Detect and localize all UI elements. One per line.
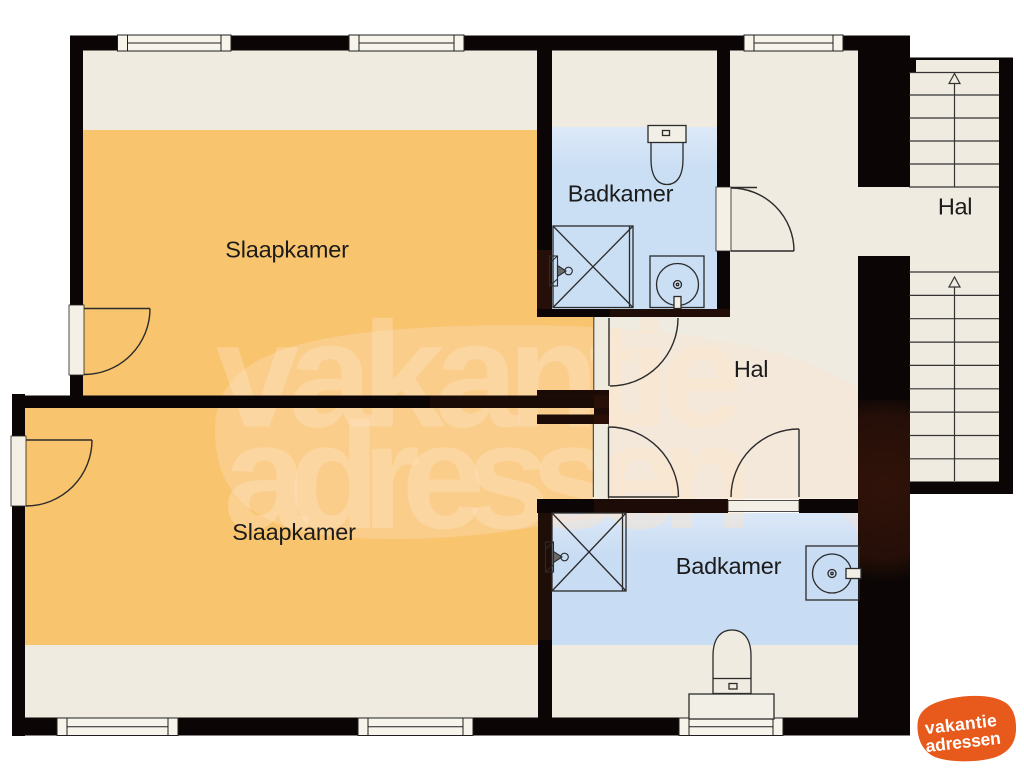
svg-text:Badkamer: Badkamer [676,553,782,579]
svg-text:Hal: Hal [734,356,768,382]
svg-text:Hal: Hal [938,194,972,220]
svg-text:Slaapkamer: Slaapkamer [225,237,349,263]
svg-text:Badkamer: Badkamer [568,181,674,207]
svg-text:Slaapkamer: Slaapkamer [232,519,356,545]
